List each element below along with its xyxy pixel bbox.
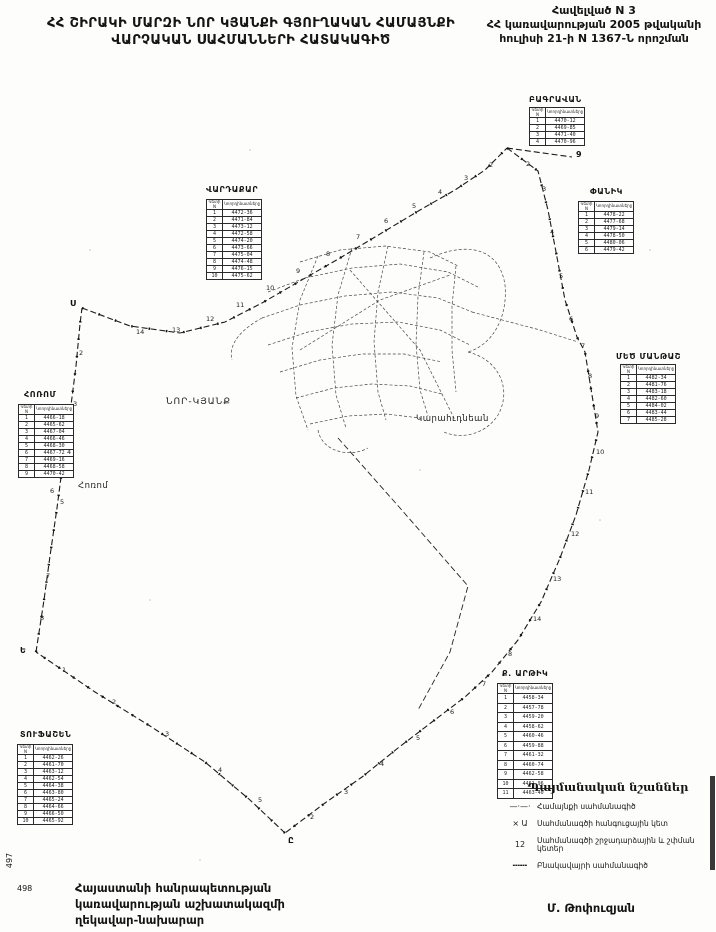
map-place-label: ՆՈՐ-ԿՅԱՆՔ xyxy=(166,397,231,407)
coord-table-row: 84464-66 xyxy=(18,804,73,811)
coord-table-cell: 4476-15 xyxy=(223,266,262,273)
boundary-point-number: 9 xyxy=(296,267,300,275)
coord-table-cell: 9 xyxy=(498,770,514,780)
coord-table-cell: 4472-58 xyxy=(223,231,262,238)
neighbor-label-horom: ՀՈՌՈՄ xyxy=(24,390,56,399)
coord-table-cell: 4 xyxy=(579,233,595,240)
coord-table-cell: 4469-85 xyxy=(546,125,585,132)
boundary-point-number: 11 xyxy=(585,488,593,496)
coord-table-cell: 9 xyxy=(19,471,35,478)
coord-table-cell: 4464-38 xyxy=(34,783,73,790)
footer-signatory-block: Հայաստանի հանրապետության կառավարության ա… xyxy=(75,880,285,928)
page-number: 498 xyxy=(17,884,32,893)
boundary-point-number: 5 xyxy=(416,734,420,742)
coord-table-header: Կետի N xyxy=(207,200,223,210)
coord-table-row: 14470-12 xyxy=(530,118,585,125)
coord-table-cell: 4462-58 xyxy=(514,770,553,780)
footer-line-1: Հայաստանի հանրապետության xyxy=(75,880,285,896)
coord-table-row: 84468-58 xyxy=(19,464,74,471)
coord-table-row: 74485-28 xyxy=(621,417,676,424)
coord-table-row: 34473-12 xyxy=(207,224,262,231)
coord-table-cell: 3 xyxy=(621,389,637,396)
coord-table-cell: 4462-26 xyxy=(34,755,73,762)
boundary-point-number: 8 xyxy=(40,614,44,622)
neighbor-label-artik: Ք. ԱՐԹԻԿ xyxy=(502,669,548,678)
coord-table-row: 84460-74 xyxy=(498,760,553,770)
coord-table-cell: 7 xyxy=(18,797,34,804)
coord-table-row: 54464-38 xyxy=(18,783,73,790)
coord-table-cell: 4461-70 xyxy=(34,762,73,769)
coord-table-row: 14458-34 xyxy=(498,694,553,704)
coord-table-row: 14482-34 xyxy=(621,375,676,382)
coord-table-cell: 6 xyxy=(621,410,637,417)
coord-table-cell: 6 xyxy=(579,247,595,254)
coord-table-cell: 4469-16 xyxy=(35,457,74,464)
coord-table-cell: 4466-46 xyxy=(35,436,74,443)
boundary-vertex-letter: Ե xyxy=(20,646,26,655)
coord-table-cell: 4459-88 xyxy=(514,741,553,751)
coord-table-cell: 4 xyxy=(530,139,546,146)
coord-table-cell: 6 xyxy=(19,450,35,457)
legend-items: —·—·Համայնքի սահմանագիծ× ԱՍահմանագծի հան… xyxy=(503,803,713,870)
boundary-point-number: 5 xyxy=(258,796,262,804)
coord-table-row: 24481-76 xyxy=(621,382,676,389)
boundary-point-number: 3 xyxy=(73,400,77,408)
coord-table-row: 14462-26 xyxy=(18,755,73,762)
coord-table-header: Կետի N xyxy=(579,202,595,212)
coord-table-row: 34463-12 xyxy=(18,769,73,776)
coord-table-row: 74461-32 xyxy=(498,751,553,761)
neighbor-label-mets-mantash: ՄԵԾ ՄԱՆԹԱՇ xyxy=(616,352,681,361)
coord-table-cell: 4477-68 xyxy=(595,219,634,226)
coord-table-row: 54480-06 xyxy=(579,240,634,247)
coord-table-row: 24471-84 xyxy=(207,217,262,224)
coord-table-cell: 4468-58 xyxy=(35,464,74,471)
coord-table-cell: 4474-20 xyxy=(223,238,262,245)
coord-table-header: Կոորդինատները xyxy=(595,202,634,212)
coord-table-cell: 4471-84 xyxy=(223,217,262,224)
coord-table-row: 34479-14 xyxy=(579,226,634,233)
coord-table-row: 44478-50 xyxy=(579,233,634,240)
coord-table-cell: 4466-18 xyxy=(35,415,74,422)
boundary-point-number: 14 xyxy=(136,328,144,336)
boundary-point-number: 6 xyxy=(50,487,54,495)
coord-table-cell: 4462-54 xyxy=(34,776,73,783)
boundary-point-number: 4 xyxy=(218,766,222,774)
coord-table-cell: 7 xyxy=(207,252,223,259)
coord-table-row: 24457-78 xyxy=(498,703,553,713)
boundary-point-number: 4 xyxy=(550,228,554,236)
boundary-vertex-letter: Ս xyxy=(70,299,76,308)
coord-table-cell: 5 xyxy=(19,443,35,450)
coord-table-cell: 4 xyxy=(621,396,637,403)
coord-table-cell: 4460-74 xyxy=(514,760,553,770)
boundary-point-number: 4 xyxy=(67,448,71,456)
boundary-point-number: 8 xyxy=(326,250,330,258)
coord-table-row: 64463-80 xyxy=(18,790,73,797)
coord-table-cell: 1 xyxy=(621,375,637,382)
signature-name: Մ. Թոփուզյան xyxy=(547,901,635,915)
coord-table-cell: 4463-80 xyxy=(34,790,73,797)
coord-table-cell: 8 xyxy=(498,760,514,770)
coord-table-cell: 4475-62 xyxy=(223,273,262,280)
neighbor-label-vardakar: ՎԱՐԴԱՔԱՐ xyxy=(206,185,258,194)
neighbor-label-bagravan: ԲԱԳՐԱՎԱՆ xyxy=(529,95,582,104)
coord-table-header: Կետի N xyxy=(530,108,546,118)
coord-table-cell: 4466-50 xyxy=(34,811,73,818)
coord-table-cell: 4484-02 xyxy=(637,403,676,410)
boundary-point-number: 7 xyxy=(482,680,486,688)
boundary-point-number: 7 xyxy=(581,342,585,350)
coord-table-cell: 4467-04 xyxy=(35,429,74,436)
coord-table-panik: Կետի NԿոորդինատները14478-2224477-6834479… xyxy=(578,201,634,254)
coord-table-row: 64483-44 xyxy=(621,410,676,417)
settlement-boundary-line xyxy=(338,438,468,710)
coord-table-cell: 4475-04 xyxy=(223,252,262,259)
coord-table-cell: 4485-28 xyxy=(637,417,676,424)
coord-table-cell: 10 xyxy=(207,273,223,280)
coord-table-header: Կոորդինատները xyxy=(546,108,585,118)
coord-table-row: 34471-40 xyxy=(530,132,585,139)
coord-table-row: 54484-02 xyxy=(621,403,676,410)
legend-symbol: —·—· xyxy=(503,803,537,811)
coord-table-row: 34459-20 xyxy=(498,713,553,723)
settlement-street-network xyxy=(231,246,578,453)
neighbor-label-tufashen: ՏՈՒՖԱՇԵՆ xyxy=(20,730,71,739)
coord-table-cell: 4483-18 xyxy=(637,389,676,396)
coord-table-cell: 4478-22 xyxy=(595,212,634,219)
coord-table-cell: 4482-34 xyxy=(637,375,676,382)
coord-table-row: 24469-85 xyxy=(530,125,585,132)
coord-table-row: 44466-46 xyxy=(19,436,74,443)
coord-table-row: 34467-04 xyxy=(19,429,74,436)
coord-table-horom: Կետի NԿոորդինատները14466-1824465-6234467… xyxy=(18,404,74,478)
coord-table-row: 44458-62 xyxy=(498,722,553,732)
coord-table-cell: 4 xyxy=(498,722,514,732)
legend: Պայմանական նշաններ —·—·Համայնքի սահմանագ… xyxy=(503,780,713,870)
coord-table-row: 64459-88 xyxy=(498,741,553,751)
legend-item-3: ╍╍╍Բնակավայրի սահմանագիծ xyxy=(503,862,713,870)
coord-table-row: 44472-58 xyxy=(207,231,262,238)
coord-table-vardakar: Կետի NԿոորդինատները14472-3624471-8434473… xyxy=(206,199,262,280)
coord-table-cell: 4478-50 xyxy=(595,233,634,240)
coord-table-cell: 4457-78 xyxy=(514,703,553,713)
coord-table-tufashen: Կետի NԿոորդինատները14462-2624461-7034463… xyxy=(17,744,73,825)
boundary-vertex-letter: 9 xyxy=(576,150,582,159)
legend-item-1: × ԱՍահմանագծի հանգուցային կետ xyxy=(503,820,713,828)
boundary-point-number: 3 xyxy=(344,788,348,796)
boundary-point-number: 14 xyxy=(533,615,541,623)
coord-table-cell: 1 xyxy=(19,415,35,422)
legend-symbol: × Ա xyxy=(503,820,537,828)
coord-table-cell: 3 xyxy=(207,224,223,231)
coord-table-cell: 4 xyxy=(207,231,223,238)
coord-table-cell: 5 xyxy=(498,732,514,742)
coord-table-header: Կետի N xyxy=(18,745,34,755)
boundary-point-number: 1 xyxy=(62,666,66,674)
coord-table-cell: 4473-12 xyxy=(223,224,262,231)
coord-table-row: 14466-18 xyxy=(19,415,74,422)
boundary-point-number: 5 xyxy=(60,498,64,506)
coord-table-cell: 1 xyxy=(498,694,514,704)
coord-table-row: 24461-70 xyxy=(18,762,73,769)
coord-table-row: 34483-18 xyxy=(621,389,676,396)
coord-table-cell: 4465-24 xyxy=(34,797,73,804)
coord-table-cell: 3 xyxy=(579,226,595,233)
coord-table-cell: 4458-62 xyxy=(514,722,553,732)
coord-table-cell: 1 xyxy=(207,210,223,217)
boundary-point-number: 12 xyxy=(571,530,579,538)
coord-table-row: 64473-66 xyxy=(207,245,262,252)
coord-table-cell: 1 xyxy=(18,755,34,762)
boundary-vertex-letter: Ը xyxy=(288,836,294,845)
coord-table-row: 54474-20 xyxy=(207,238,262,245)
legend-label: Բնակավայրի սահմանագիծ xyxy=(537,862,648,870)
boundary-point-number: 11 xyxy=(236,301,244,309)
boundary-point-number: 2 xyxy=(489,161,493,169)
coord-table-cell: 4463-12 xyxy=(34,769,73,776)
coord-table-row: 74475-04 xyxy=(207,252,262,259)
coord-table-cell: 1 xyxy=(579,212,595,219)
coord-table-row: 44462-54 xyxy=(18,776,73,783)
boundary-point-number: 8 xyxy=(588,372,592,380)
boundary-point-number: 13 xyxy=(553,575,561,583)
coord-table-cell: 2 xyxy=(18,762,34,769)
coord-table-cell: 9 xyxy=(18,811,34,818)
boundary-point-number: 3 xyxy=(165,730,169,738)
boundary-point-number: 10 xyxy=(266,284,274,292)
boundary-point-number: 5 xyxy=(559,272,563,280)
coord-table-cell: 4480-06 xyxy=(595,240,634,247)
coord-table-row: 74469-16 xyxy=(19,457,74,464)
legend-symbol: ╍╍╍ xyxy=(503,862,537,870)
coord-table-cell: 4482-60 xyxy=(637,396,676,403)
boundary-point-number: 6 xyxy=(384,217,388,225)
boundary-point-number: 4 xyxy=(438,188,442,196)
coord-table-cell: 8 xyxy=(18,804,34,811)
boundary-point-number: 2 xyxy=(526,160,530,168)
coord-table-cell: 4483-44 xyxy=(637,410,676,417)
coord-table-cell: 3 xyxy=(530,132,546,139)
legend-label: Սահմանագծի հանգուցային կետ xyxy=(537,820,668,828)
coord-table-cell: 2 xyxy=(579,219,595,226)
coord-table-row: 14472-36 xyxy=(207,210,262,217)
coord-table-cell: 4465-62 xyxy=(35,422,74,429)
coord-table-cell: 4464-66 xyxy=(34,804,73,811)
coord-table-row: 94470-42 xyxy=(19,471,74,478)
coord-table-header: Կետի N xyxy=(498,684,514,694)
coord-table-row: 104465-92 xyxy=(18,818,73,825)
boundary-point-number: 8 xyxy=(508,650,512,658)
coord-table-row: 54468-30 xyxy=(19,443,74,450)
coord-table-row: 14478-22 xyxy=(579,212,634,219)
coord-table-row: 44470-96 xyxy=(530,139,585,146)
coord-table-cell: 10 xyxy=(18,818,34,825)
boundary-point-number: 2 xyxy=(79,349,83,357)
coord-table-row: 74465-24 xyxy=(18,797,73,804)
coord-table-cell: 3 xyxy=(19,429,35,436)
coord-table-row: 54460-46 xyxy=(498,732,553,742)
legend-symbol: 12 xyxy=(503,841,537,849)
coord-table-row: 24465-62 xyxy=(19,422,74,429)
coord-table-cell: 7 xyxy=(498,751,514,761)
coord-table-row: 44482-60 xyxy=(621,396,676,403)
footer-line-3: ղեկավար-նախարար xyxy=(75,912,285,928)
boundary-point-number: 5 xyxy=(412,202,416,210)
coord-table-cell: 8 xyxy=(19,464,35,471)
legend-item-2: 12Սահմանագծի շրջադարձային և շփման կետեր xyxy=(503,837,713,853)
coord-table-cell: 5 xyxy=(18,783,34,790)
map-place-label: Հոռոմ xyxy=(78,481,108,491)
coord-table-cell: 4479-14 xyxy=(595,226,634,233)
coord-table-cell: 4472-36 xyxy=(223,210,262,217)
coord-table-row: 64479-42 xyxy=(579,247,634,254)
coord-table-header: Կոորդինատները xyxy=(637,365,676,375)
coord-table-cell: 4460-46 xyxy=(514,732,553,742)
boundary-point-number: 3 xyxy=(542,185,546,193)
scan-edge-smudge xyxy=(710,776,715,870)
boundary-point-number: 7 xyxy=(356,233,360,241)
coord-table-cell: 1 xyxy=(530,118,546,125)
coord-table-cell: 4 xyxy=(18,776,34,783)
coord-table-row: 94476-15 xyxy=(207,266,262,273)
coord-table-cell: 4461-32 xyxy=(514,751,553,761)
coord-table-cell: 4458-34 xyxy=(514,694,553,704)
coord-table-cell: 7 xyxy=(19,457,35,464)
legend-label: Համայնքի սահմանագիծ xyxy=(537,803,636,811)
coord-table-cell: 2 xyxy=(207,217,223,224)
scanned-map-page: ՀՀ ՇԻՐԱԿԻ ՄԱՐԶԻ ՆՈՐ ԿՅԱՆՔԻ ԳՅՈՒՂԱԿԱՆ ՀԱՄ… xyxy=(0,0,716,932)
coord-table-bagravan: Կետի NԿոորդինատները14470-1224469-8534471… xyxy=(529,107,585,146)
scan-noise xyxy=(89,149,651,861)
coord-table-header: Կոորդինատները xyxy=(35,405,74,415)
coord-table-cell: 4470-96 xyxy=(546,139,585,146)
coord-table-cell: 4481-76 xyxy=(637,382,676,389)
coord-table-row: 94462-58 xyxy=(498,770,553,780)
coord-table-header: Կոորդինատները xyxy=(34,745,73,755)
coord-table-header: Կոորդինատները xyxy=(514,684,553,694)
coord-table-cell: 8 xyxy=(207,259,223,266)
boundary-point-number: 10 xyxy=(596,448,604,456)
legend-label: Սահմանագծի շրջադարձային և շփման կետեր xyxy=(537,837,713,853)
coord-table-row: 24477-68 xyxy=(579,219,634,226)
coord-table-cell: 4474-48 xyxy=(223,259,262,266)
coord-table-cell: 2 xyxy=(19,422,35,429)
coord-table-cell: 4 xyxy=(19,436,35,443)
coord-table-row: 104475-62 xyxy=(207,273,262,280)
coord-table-cell: 5 xyxy=(621,403,637,410)
boundary-point-number: 13 xyxy=(172,326,180,334)
legend-item-0: —·—·Համայնքի սահմանագիծ xyxy=(503,803,713,811)
boundary-point-number: 4 xyxy=(380,760,384,768)
boundary-point-number: 12 xyxy=(206,315,214,323)
map-place-label: Կարահւդնեան xyxy=(416,414,489,424)
coord-table-cell: 6 xyxy=(498,741,514,751)
coord-table-row: 94466-50 xyxy=(18,811,73,818)
footer-line-2: կառավարության աշխատակազմի xyxy=(75,896,285,912)
coord-table-cell: 4465-92 xyxy=(34,818,73,825)
legend-title: Պայմանական նշաններ xyxy=(503,780,713,794)
coord-table-cell: 7 xyxy=(621,417,637,424)
neighbor-label-panik: ՓԱՆԻԿ xyxy=(590,187,623,196)
coord-table-mets-mantash: Կետի NԿոորդինատները14482-3424481-7634483… xyxy=(620,364,676,424)
page-number-rotated: 497 xyxy=(5,853,14,868)
coord-table-cell: 4459-20 xyxy=(514,713,553,723)
boundary-point-number: 6 xyxy=(450,708,454,716)
coord-table-header: Կոորդինատները xyxy=(223,200,262,210)
coord-table-cell: 4470-42 xyxy=(35,471,74,478)
coord-table-cell: 2 xyxy=(498,703,514,713)
boundary-point-number: 9 xyxy=(595,412,599,420)
boundary-point-number: 2 xyxy=(112,698,116,706)
boundary-point-number: 2 xyxy=(310,813,314,821)
boundary-point-number: 6 xyxy=(569,315,573,323)
boundary-point-number: 3 xyxy=(464,174,468,182)
coord-table-header: Կետի N xyxy=(621,365,637,375)
coord-table-cell: 6 xyxy=(207,245,223,252)
coord-table-cell: 4470-12 xyxy=(546,118,585,125)
coord-table-cell: 5 xyxy=(207,238,223,245)
coord-table-row: 64467-72 xyxy=(19,450,74,457)
coord-table-cell: 3 xyxy=(18,769,34,776)
coord-table-cell: 6 xyxy=(18,790,34,797)
coord-table-cell: 2 xyxy=(530,125,546,132)
coord-table-cell: 9 xyxy=(207,266,223,273)
coord-table-cell: 4473-66 xyxy=(223,245,262,252)
coord-table-cell: 4471-40 xyxy=(546,132,585,139)
coord-table-cell: 3 xyxy=(498,713,514,723)
coord-table-cell: 2 xyxy=(621,382,637,389)
coord-table-header: Կետի N xyxy=(19,405,35,415)
coord-table-cell: 5 xyxy=(579,240,595,247)
coord-table-row: 84474-48 xyxy=(207,259,262,266)
coord-table-cell: 4479-42 xyxy=(595,247,634,254)
boundary-point-number: 7 xyxy=(46,572,50,580)
